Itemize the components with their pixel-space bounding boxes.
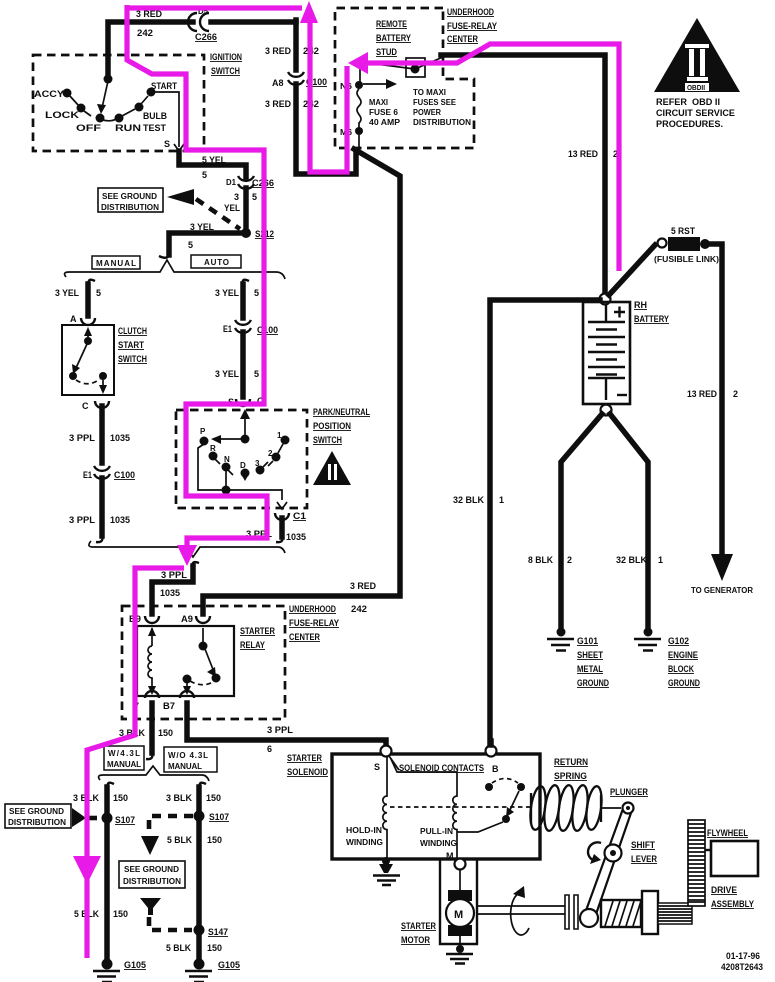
svg-text:SOLENOID: SOLENOID [287, 767, 328, 777]
svg-text:C: C [82, 401, 89, 411]
svg-text:3 YEL: 3 YEL [55, 288, 79, 298]
svg-text:FLYWHEEL: FLYWHEEL [707, 828, 748, 838]
svg-text:S: S [374, 762, 380, 772]
svg-text:(FUSIBLE LINK): (FUSIBLE LINK) [654, 255, 719, 264]
svg-text:1: 1 [499, 495, 504, 505]
svg-text:DRIVE: DRIVE [711, 885, 737, 895]
svg-text:2: 2 [567, 555, 572, 565]
svg-text:TO GENERATOR: TO GENERATOR [691, 586, 753, 595]
svg-text:R: R [210, 444, 216, 453]
svg-text:START: START [118, 340, 144, 350]
svg-text:CLUTCH: CLUTCH [118, 326, 147, 336]
svg-text:N: N [224, 455, 230, 464]
svg-text:3 RED: 3 RED [265, 99, 291, 109]
svg-text:C100: C100 [257, 325, 278, 335]
svg-text:DISTRIBUTION: DISTRIBUTION [413, 118, 471, 127]
svg-text:5 BLK: 5 BLK [167, 835, 192, 845]
svg-text:ACCY: ACCY [34, 89, 64, 99]
svg-text:150: 150 [113, 793, 128, 803]
svg-text:S147: S147 [208, 927, 228, 937]
svg-text:CIRCUIT SERVICE: CIRCUIT SERVICE [656, 108, 735, 118]
svg-text:1: 1 [658, 555, 663, 565]
svg-text:YEL: YEL [224, 203, 240, 213]
svg-text:SWITCH: SWITCH [313, 435, 342, 445]
svg-text:3 PPL: 3 PPL [69, 433, 96, 443]
svg-text:WINDING: WINDING [346, 838, 383, 847]
svg-text:STARTER: STARTER [401, 921, 436, 931]
svg-text:M: M [454, 909, 463, 921]
svg-text:POSITION: POSITION [313, 421, 351, 431]
svg-text:SPRING: SPRING [554, 771, 587, 781]
svg-text:E1: E1 [223, 324, 232, 334]
svg-text:2: 2 [733, 389, 738, 399]
svg-text:5: 5 [202, 170, 207, 180]
svg-text:CENTER: CENTER [447, 34, 478, 44]
svg-text:40 AMP: 40 AMP [369, 118, 401, 127]
svg-text:DISTRIBUTION: DISTRIBUTION [8, 818, 66, 827]
svg-text:5: 5 [254, 288, 259, 298]
svg-text:BATTERY: BATTERY [376, 33, 411, 43]
svg-text:PROCEDURES.: PROCEDURES. [656, 119, 723, 129]
svg-text:STUD: STUD [376, 47, 397, 57]
svg-text:LOCK: LOCK [45, 110, 80, 120]
svg-text:3: 3 [255, 459, 260, 468]
svg-text:WINDING: WINDING [420, 839, 457, 848]
svg-text:B7: B7 [163, 701, 175, 711]
svg-text:5 BLK: 5 BLK [166, 943, 191, 953]
svg-text:SWITCH: SWITCH [211, 66, 240, 76]
svg-text:TEST: TEST [143, 123, 166, 133]
svg-text:MANUAL: MANUAL [107, 760, 141, 769]
svg-text:GROUND: GROUND [577, 678, 609, 688]
svg-text:POWER: POWER [413, 108, 441, 117]
svg-text:13 RED: 13 RED [687, 389, 717, 399]
svg-text:W/O 4.3L: W/O 4.3L [168, 751, 208, 760]
svg-text:PULL-IN: PULL-IN [420, 827, 453, 836]
svg-text:MOTOR: MOTOR [401, 935, 430, 945]
svg-text:METAL: METAL [577, 664, 603, 674]
svg-text:1035: 1035 [110, 433, 130, 443]
svg-text:ENGINE: ENGINE [668, 650, 698, 660]
svg-text:PARK/NEUTRAL: PARK/NEUTRAL [313, 407, 370, 417]
svg-text:150: 150 [207, 943, 222, 953]
svg-text:UNDERHOOD: UNDERHOOD [447, 7, 494, 17]
svg-text:G102: G102 [668, 636, 689, 646]
svg-text:01-17-96: 01-17-96 [726, 951, 760, 961]
svg-text:G101: G101 [577, 636, 598, 646]
svg-text:S107: S107 [209, 812, 229, 822]
svg-text:1035: 1035 [110, 515, 130, 525]
svg-text:150: 150 [206, 793, 221, 803]
svg-text:6: 6 [267, 744, 272, 754]
svg-text:D1: D1 [226, 178, 237, 187]
svg-text:3 PPL: 3 PPL [161, 570, 188, 580]
svg-text:MANUAL: MANUAL [168, 762, 202, 771]
svg-text:OFF: OFF [76, 123, 102, 133]
svg-text:DISTRIBUTION: DISTRIBUTION [101, 203, 159, 212]
svg-text:SHEET: SHEET [577, 650, 603, 660]
svg-text:SEE GROUND: SEE GROUND [124, 865, 179, 874]
svg-text:FUSE-RELAY: FUSE-RELAY [289, 618, 339, 628]
svg-text:3 YEL: 3 YEL [215, 288, 239, 298]
svg-text:RELAY: RELAY [240, 640, 265, 650]
svg-text:2: 2 [268, 449, 273, 458]
svg-text:3 BLK: 3 BLK [166, 793, 192, 803]
svg-text:A: A [70, 314, 77, 324]
svg-text:OBDII: OBDII [687, 85, 705, 92]
svg-text:RH: RH [634, 300, 647, 310]
svg-text:MAXI: MAXI [369, 98, 388, 107]
svg-text:S107: S107 [115, 815, 135, 825]
svg-text:HOLD-IN: HOLD-IN [346, 826, 382, 835]
svg-text:W/4.3L: W/4.3L [108, 749, 140, 758]
svg-text:3 YEL: 3 YEL [190, 222, 214, 232]
svg-text:P: P [200, 427, 206, 436]
svg-text:BULB: BULB [143, 111, 167, 121]
svg-text:SEE GROUND: SEE GROUND [102, 192, 157, 201]
svg-text:150: 150 [158, 728, 173, 738]
svg-text:DISTRIBUTION: DISTRIBUTION [123, 877, 181, 886]
svg-text:5: 5 [188, 240, 193, 250]
svg-text:D: D [240, 461, 246, 470]
svg-text:3 RED: 3 RED [350, 581, 376, 591]
svg-text:242: 242 [137, 28, 153, 38]
svg-text:B: B [492, 764, 499, 774]
svg-text:SEE GROUND: SEE GROUND [9, 807, 64, 816]
svg-text:C1: C1 [293, 511, 306, 521]
svg-text:GROUND: GROUND [668, 678, 700, 688]
svg-text:5 YEL: 5 YEL [202, 155, 226, 165]
svg-text:FUSES SEE: FUSES SEE [413, 98, 457, 107]
svg-text:REMOTE: REMOTE [376, 19, 407, 29]
svg-text:CENTER: CENTER [289, 632, 320, 642]
svg-text:REFER OBD II: REFER OBD II [656, 97, 720, 107]
svg-text:8 BLK: 8 BLK [528, 555, 553, 565]
svg-text:RETURN: RETURN [554, 757, 588, 767]
svg-text:3 PPL: 3 PPL [69, 515, 96, 525]
svg-text:5 RST: 5 RST [671, 226, 695, 236]
svg-text:RUN: RUN [115, 123, 141, 133]
svg-text:STARTER: STARTER [287, 753, 322, 763]
svg-text:BATTERY: BATTERY [634, 314, 669, 324]
svg-text:A8: A8 [272, 78, 284, 88]
svg-text:IGNITION: IGNITION [210, 52, 242, 62]
svg-text:SWITCH: SWITCH [118, 354, 147, 364]
svg-text:STARTER: STARTER [240, 626, 275, 636]
svg-text:A9: A9 [181, 614, 193, 624]
svg-text:1035: 1035 [286, 532, 306, 542]
svg-text:150: 150 [113, 909, 128, 919]
svg-text:1035: 1035 [160, 588, 180, 598]
svg-text:G105: G105 [218, 960, 240, 970]
svg-text:3 PPL: 3 PPL [267, 725, 294, 735]
svg-text:FUSE 6: FUSE 6 [369, 108, 399, 117]
svg-text:32 BLK: 32 BLK [616, 555, 647, 565]
svg-text:LEVER: LEVER [631, 854, 657, 864]
svg-text:START: START [151, 81, 177, 91]
svg-text:13 RED: 13 RED [568, 149, 598, 159]
svg-text:PLUNGER: PLUNGER [610, 787, 648, 797]
svg-text:3 YEL: 3 YEL [215, 369, 239, 379]
svg-text:5: 5 [254, 369, 259, 379]
svg-text:FUSE-RELAY: FUSE-RELAY [447, 21, 497, 31]
svg-text:BLOCK: BLOCK [668, 664, 694, 674]
svg-text:E1: E1 [83, 470, 92, 480]
svg-text:AUTO: AUTO [204, 258, 229, 267]
svg-text:242: 242 [351, 604, 367, 614]
svg-text:150: 150 [207, 835, 222, 845]
svg-text:C266: C266 [195, 32, 217, 42]
svg-text:SHIFT: SHIFT [631, 840, 655, 850]
svg-text:S: S [164, 139, 170, 149]
svg-text:4208T2643: 4208T2643 [721, 962, 763, 972]
svg-text:UNDERHOOD: UNDERHOOD [289, 604, 336, 614]
svg-text:ASSEMBLY: ASSEMBLY [711, 899, 754, 909]
svg-text:5: 5 [252, 192, 257, 202]
svg-text:3: 3 [234, 192, 239, 202]
svg-text:C100: C100 [114, 470, 135, 480]
svg-text:M: M [446, 851, 454, 861]
svg-text:5: 5 [96, 288, 101, 298]
svg-text:TO MAXI: TO MAXI [413, 88, 446, 97]
svg-text:G105: G105 [124, 960, 146, 970]
svg-text:3 RED: 3 RED [265, 46, 291, 56]
svg-text:32 BLK: 32 BLK [453, 495, 484, 505]
svg-text:1: 1 [277, 431, 282, 440]
